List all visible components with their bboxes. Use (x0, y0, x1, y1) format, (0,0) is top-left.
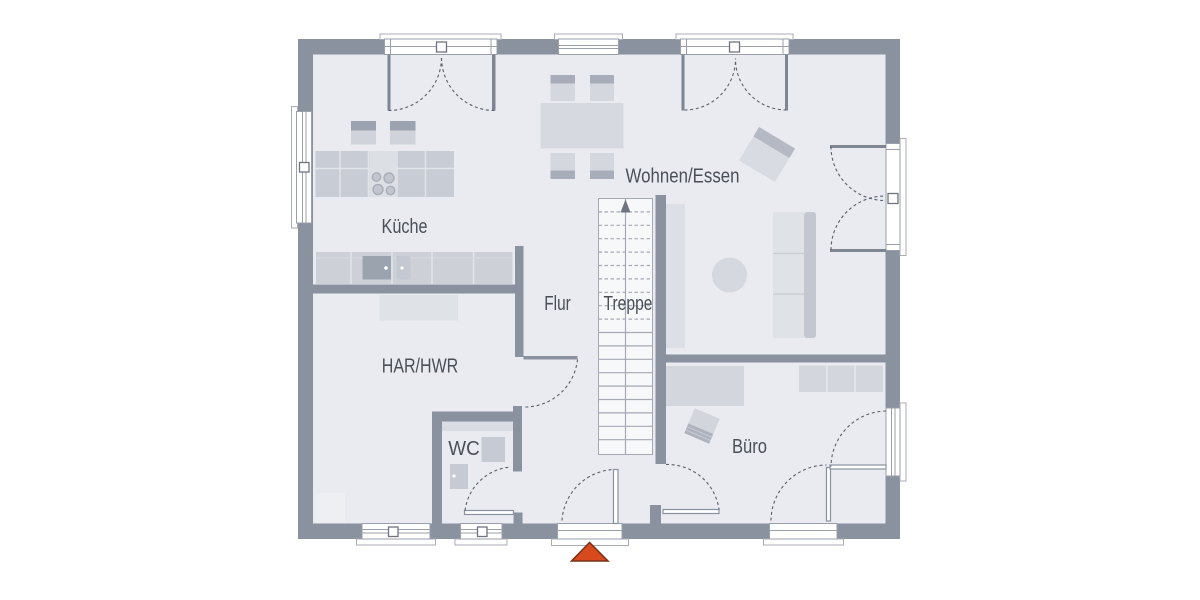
svg-text:Wohnen/Essen: Wohnen/Essen (626, 165, 740, 188)
svg-text:Büro: Büro (732, 435, 767, 458)
svg-text:Treppe: Treppe (604, 292, 653, 315)
svg-text:Flur: Flur (544, 292, 571, 315)
svg-text:WC: WC (448, 437, 480, 460)
svg-text:HAR/HWR: HAR/HWR (382, 355, 459, 378)
svg-text:Küche: Küche (382, 215, 428, 238)
